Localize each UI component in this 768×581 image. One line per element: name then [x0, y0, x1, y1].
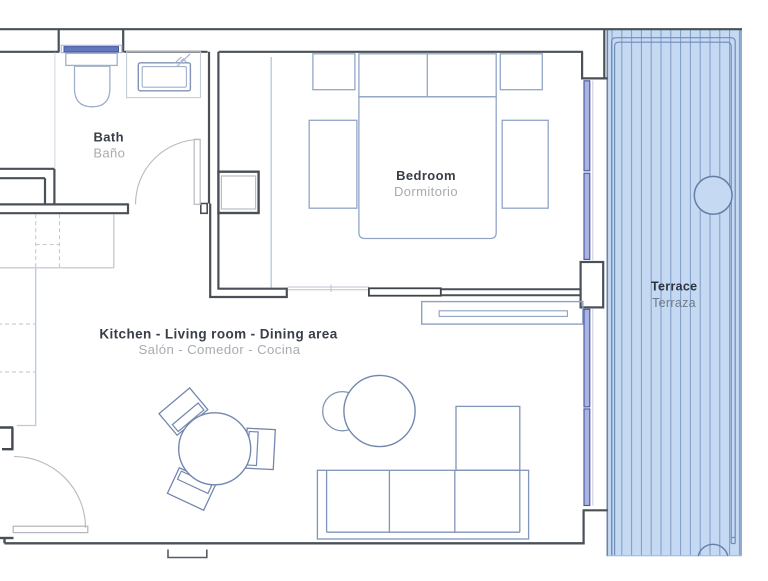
svg-text:Baño: Baño	[93, 146, 125, 161]
svg-text:Terraza: Terraza	[652, 296, 696, 310]
svg-text:Salón - Comedor - Cocina: Salón - Comedor - Cocina	[138, 342, 300, 357]
svg-text:Bedroom: Bedroom	[396, 168, 456, 183]
svg-text:Bath: Bath	[93, 130, 124, 145]
svg-text:Kitchen - Living room - Dining: Kitchen - Living room - Dining area	[99, 327, 337, 342]
svg-text:Dormitorio: Dormitorio	[394, 184, 458, 199]
svg-text:Terrace: Terrace	[651, 280, 697, 294]
